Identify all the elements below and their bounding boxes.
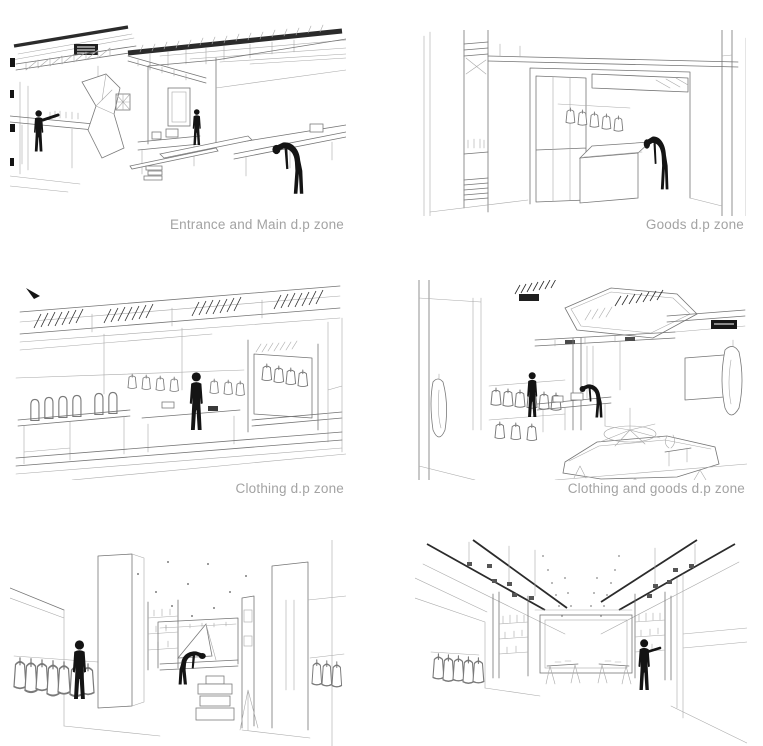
hanging-garment	[614, 116, 623, 131]
person-standing-silhouette	[34, 110, 43, 151]
display-item	[95, 393, 103, 414]
shelf-unit	[148, 600, 178, 670]
person-standing-silhouette	[190, 372, 203, 430]
hanging-garment	[210, 379, 218, 393]
hanging-garment	[495, 422, 505, 439]
line-render-clothing	[12, 282, 346, 480]
person-arm	[647, 648, 660, 652]
hanging-garment	[527, 424, 537, 441]
hanging-garment	[515, 390, 525, 407]
hanging-garment	[433, 654, 444, 679]
hanging-garment-large	[431, 379, 447, 437]
alcove-desk	[158, 618, 238, 670]
hexagon-light-frame	[565, 288, 697, 338]
panel-clothing-dp-zone: Clothing d.p zone	[12, 282, 346, 497]
floor-line	[430, 200, 528, 212]
hanging-garment	[322, 661, 332, 686]
panel-caption: Clothing and goods d.p zone	[415, 480, 747, 497]
right-wall-column	[690, 30, 746, 216]
ceiling-structure	[515, 280, 745, 392]
ceiling-dots	[542, 555, 620, 617]
hanging-garment	[142, 375, 150, 389]
hanging-garment	[443, 655, 454, 681]
hanging-garment	[170, 377, 178, 391]
right-side	[665, 340, 742, 466]
left-shelves	[493, 592, 528, 678]
display-item	[59, 396, 67, 417]
line-render-clothing-goods	[415, 280, 747, 480]
track-lamps	[467, 562, 694, 600]
left-counter	[10, 111, 94, 168]
right-room	[248, 318, 342, 452]
hanging-garment	[590, 112, 599, 127]
hanging-garment	[602, 114, 611, 129]
stacked-boxes	[196, 676, 234, 720]
panel-fitting-aisle-view	[10, 540, 346, 746]
hanging-garment-large	[722, 346, 742, 415]
floor-lines	[485, 688, 747, 744]
hanging-drape	[82, 66, 124, 158]
floor-lines	[64, 726, 310, 738]
hanging-garment	[236, 381, 244, 395]
hanging-garment	[453, 656, 464, 681]
left-wall	[424, 32, 430, 216]
panel-caption: Clothing d.p zone	[12, 480, 346, 497]
hanging-garment	[36, 660, 48, 690]
hanging-garment	[262, 364, 272, 381]
hanging-garment	[473, 658, 484, 683]
person-standing-silhouette	[638, 639, 649, 690]
person-arm	[43, 115, 58, 120]
edge-fragments	[10, 58, 15, 166]
panel-goods-dp-zone: Goods d.p zone	[420, 30, 746, 233]
panel-corridor-shelves-view	[415, 538, 747, 746]
panel-entrance-and-main-dp-zone: Entrance and Main d.p zone	[10, 24, 346, 233]
hanging-garment	[14, 658, 26, 688]
hanging-garment	[463, 657, 474, 683]
large-pillar	[98, 554, 144, 708]
cube-display	[580, 142, 650, 203]
hanging-garment	[503, 389, 513, 406]
hanging-garment	[224, 380, 232, 394]
panel-clothing-and-goods-dp-zone: Clothing and goods d.p zone	[415, 280, 747, 497]
person-bowing-silhouette	[644, 137, 669, 190]
hanging-garment	[47, 661, 59, 696]
floor-steps	[16, 432, 346, 480]
hanging-garment	[25, 659, 37, 692]
tall-panel-tripod	[240, 596, 258, 730]
panel-caption: Entrance and Main d.p zone	[10, 216, 346, 233]
hanging-garment	[128, 374, 136, 388]
panel-caption: Goods d.p zone	[420, 216, 746, 233]
line-render-goods	[420, 30, 746, 216]
ceiling-lights	[137, 561, 247, 617]
hanging-garment	[332, 662, 342, 687]
hanging-garment	[578, 110, 587, 125]
person-bowing-silhouette	[272, 142, 303, 193]
person-standing-silhouette	[527, 372, 537, 417]
hanging-garment	[58, 662, 70, 694]
hanging-garment	[566, 108, 575, 123]
display-item	[31, 399, 39, 420]
center-table	[537, 346, 611, 432]
display-item	[73, 395, 81, 416]
right-pillars	[272, 540, 346, 746]
hanging-garment	[156, 376, 164, 390]
line-render-aisle	[10, 540, 346, 746]
left-wall	[419, 280, 481, 480]
person-standing-silhouette	[193, 109, 201, 145]
shelf-column	[464, 30, 488, 212]
line-render-entrance-main	[10, 24, 346, 216]
center-table	[142, 402, 240, 452]
portfolio-sheet: Entrance and Main d.p zone	[0, 0, 763, 746]
back-wall	[535, 610, 632, 673]
ceiling-structure	[12, 25, 346, 83]
header-beam	[488, 44, 738, 67]
person-bowing-silhouette	[580, 384, 603, 417]
left-clothes	[415, 598, 485, 688]
center-tables	[546, 661, 631, 684]
hanging-garment	[511, 423, 521, 440]
hanging-garment	[286, 368, 296, 385]
ceiling-vent	[519, 294, 539, 301]
hanging-garment	[298, 370, 308, 387]
octagon-bench	[563, 408, 719, 480]
line-render-corridor	[415, 538, 747, 746]
hanging-garment	[274, 366, 284, 383]
display-item	[45, 397, 53, 418]
lattice-window	[116, 94, 130, 110]
hanging-garment	[491, 388, 501, 405]
display-item	[109, 392, 117, 413]
hanging-garment	[539, 392, 549, 409]
hanging-garment	[312, 660, 322, 685]
clothes-rail	[16, 370, 244, 395]
